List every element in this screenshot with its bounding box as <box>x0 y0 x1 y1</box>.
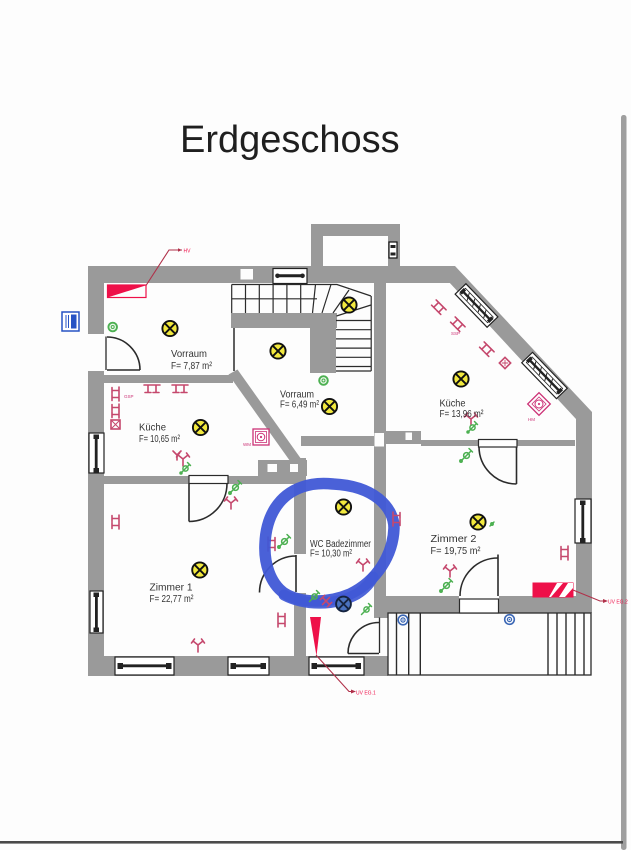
svg-text:HM: HM <box>528 417 535 422</box>
svg-text:WM: WM <box>243 442 251 447</box>
svg-text:UV EG.1: UV EG.1 <box>356 691 376 697</box>
svg-text:F= 19,75 m²: F= 19,75 m² <box>431 545 481 557</box>
svg-text:SSP: SSP <box>451 331 460 336</box>
svg-text:Zimmer 1: Zimmer 1 <box>150 582 193 594</box>
svg-text:GSP: GSP <box>124 394 134 399</box>
svg-text:Zimmer 2: Zimmer 2 <box>431 533 477 545</box>
svg-text:UV EG.2: UV EG.2 <box>608 600 628 606</box>
svg-text:F= 13,96 m²: F= 13,96 m² <box>440 408 484 420</box>
svg-text:F= 7,87 m²: F= 7,87 m² <box>171 360 212 372</box>
svg-text:Vorraum: Vorraum <box>171 348 207 360</box>
svg-text:F= 6,49 m²: F= 6,49 m² <box>280 399 319 411</box>
svg-text:F= 10,30 m²: F= 10,30 m² <box>310 549 353 560</box>
svg-text:Küche: Küche <box>139 422 166 434</box>
svg-text:F= 10,65 m²: F= 10,65 m² <box>139 433 180 445</box>
svg-text:Erdgeschoss: Erdgeschoss <box>180 119 400 161</box>
svg-text:HV: HV <box>184 249 192 255</box>
svg-text:F= 22,77 m²: F= 22,77 m² <box>150 593 194 605</box>
